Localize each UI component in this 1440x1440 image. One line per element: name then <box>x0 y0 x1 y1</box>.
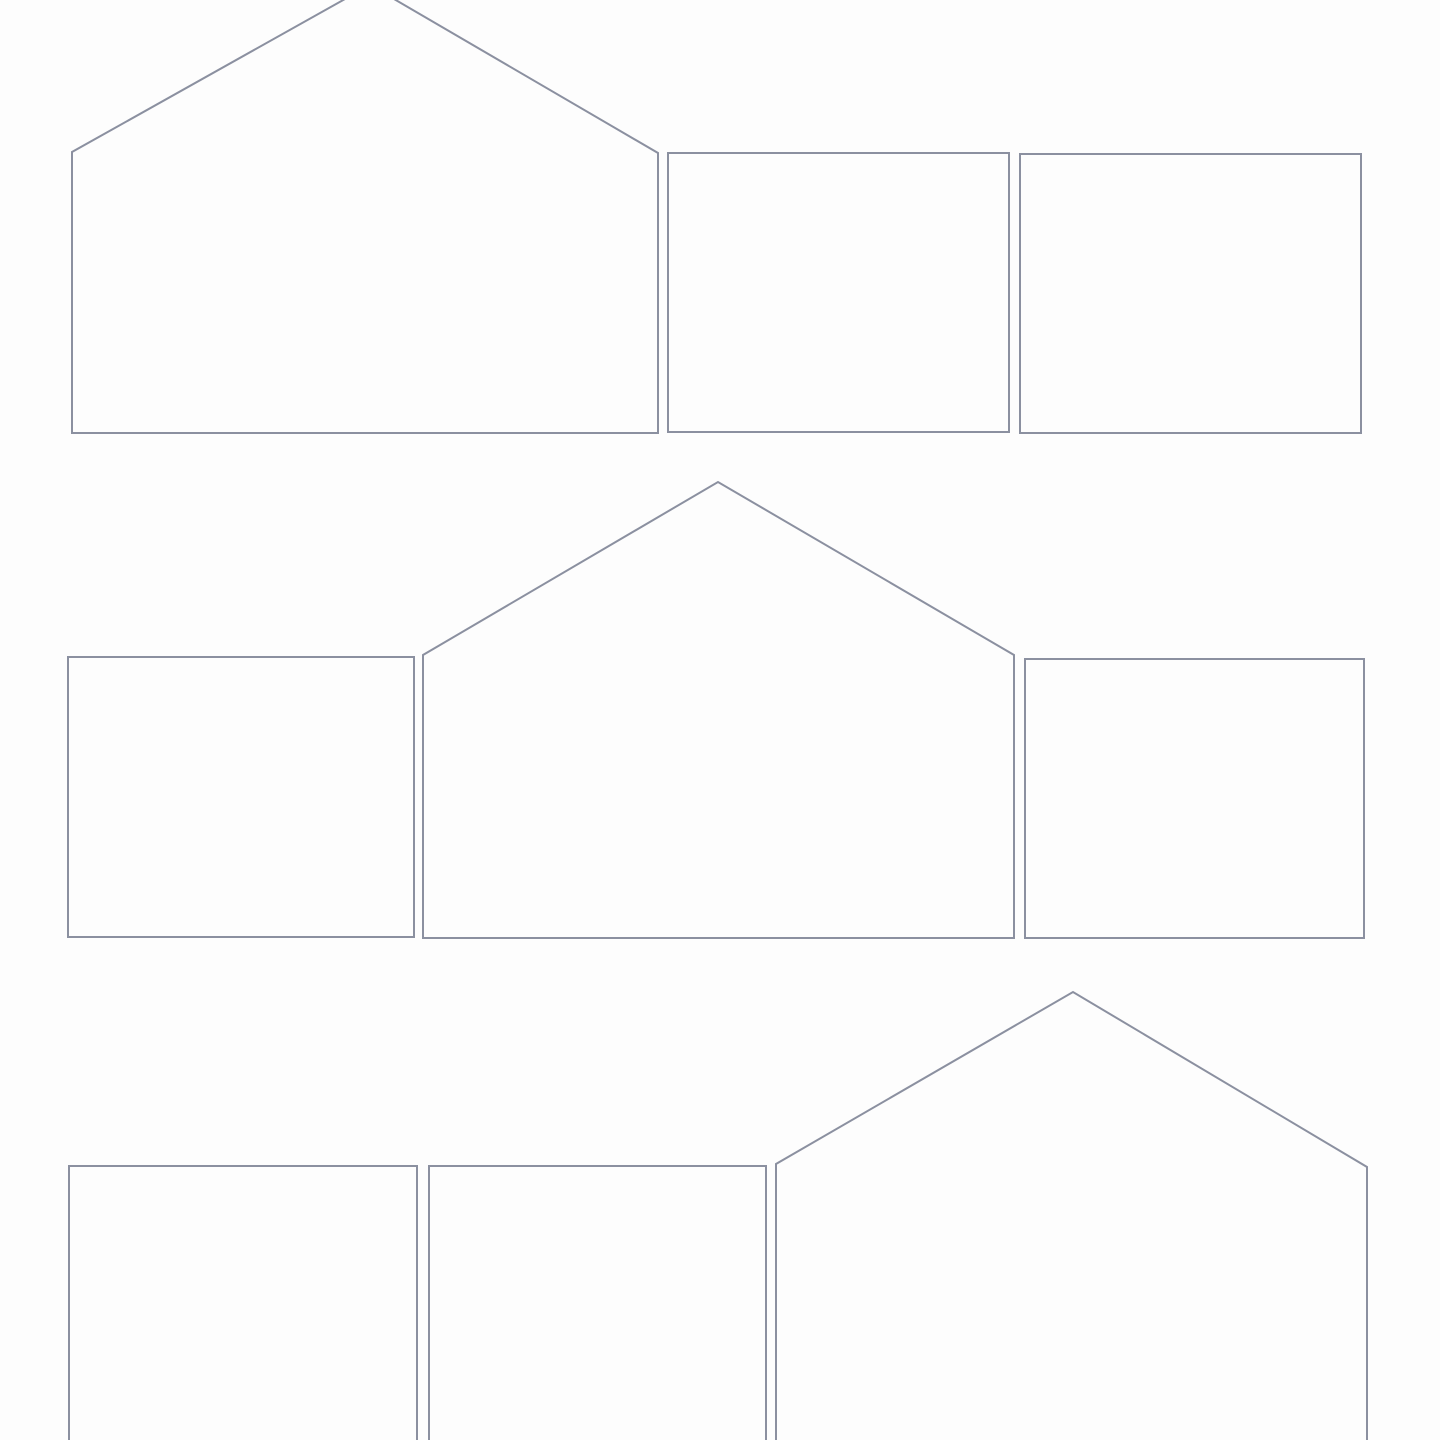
rect-outline-row1-right <box>1020 154 1361 433</box>
rect-outline-row3-middle <box>429 1166 766 1440</box>
rect-outline-row2-left <box>68 657 414 937</box>
rect-outline-row1-middle <box>668 153 1009 432</box>
house-outline-row1 <box>72 0 658 433</box>
house-outline-row2 <box>423 482 1014 938</box>
template-page <box>0 0 1440 1440</box>
rect-outline-row2-right <box>1025 659 1364 938</box>
template-canvas <box>0 0 1440 1440</box>
rect-outline-row3-left <box>69 1166 417 1440</box>
house-outline-row3 <box>776 992 1367 1440</box>
